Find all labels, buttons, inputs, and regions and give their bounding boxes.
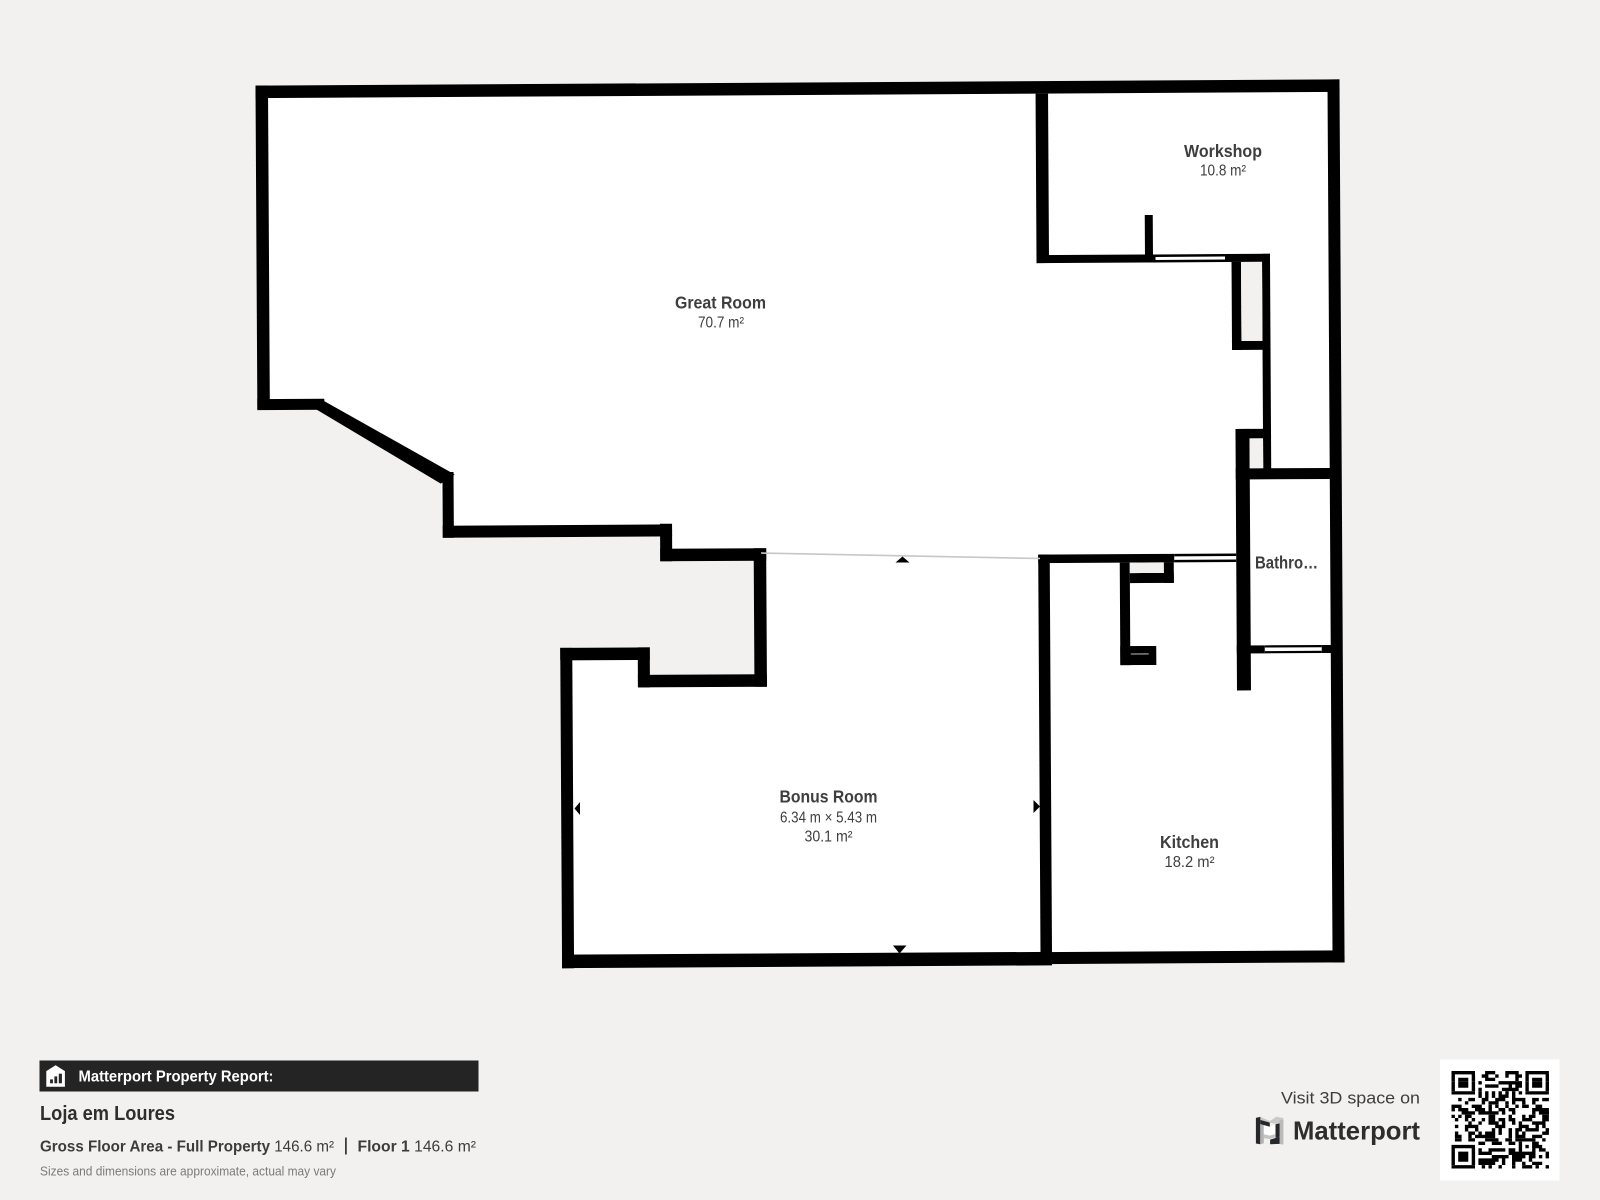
svg-text:Visit 3D space on: Visit 3D space on	[1281, 1089, 1420, 1108]
svg-text:Loja em Loures: Loja em Loures	[40, 1102, 175, 1125]
svg-text:Matterport Property Report:: Matterport Property Report:	[79, 1069, 274, 1086]
svg-text:Floor 1 146.6 m²: Floor 1 146.6 m²	[358, 1139, 477, 1156]
svg-text:Great Room: Great Room	[675, 293, 766, 313]
svg-text:Gross Floor Area - Full Proper: Gross Floor Area - Full Property 146.6 m…	[40, 1139, 334, 1156]
svg-text:Kitchen: Kitchen	[1160, 832, 1219, 852]
svg-text:30.1 m²: 30.1 m²	[805, 829, 853, 846]
svg-text:Sizes and dimensions are appro: Sizes and dimensions are approximate, ac…	[40, 1164, 336, 1179]
svg-text:Bonus Room: Bonus Room	[780, 787, 878, 807]
svg-text:Matterport: Matterport	[1293, 1116, 1420, 1146]
svg-text:70.7 m²: 70.7 m²	[698, 315, 744, 332]
svg-text:6.34 m × 5.43 m: 6.34 m × 5.43 m	[780, 810, 877, 827]
svg-text:Bathro…: Bathro…	[1255, 553, 1318, 573]
svg-text:18.2 m²: 18.2 m²	[1165, 854, 1215, 871]
svg-text:Workshop: Workshop	[1184, 141, 1262, 161]
svg-text:10.8 m²: 10.8 m²	[1200, 163, 1246, 180]
